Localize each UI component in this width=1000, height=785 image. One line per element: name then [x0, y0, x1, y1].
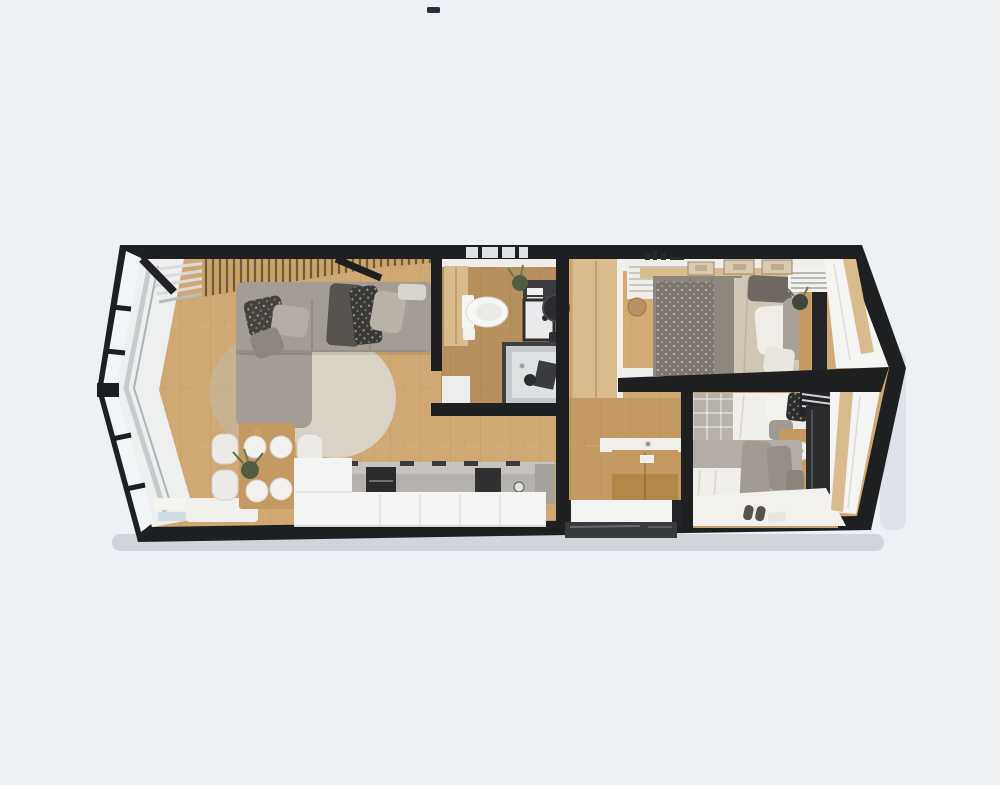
floorplan-canvas	[0, 0, 1000, 785]
bath-plant	[512, 275, 528, 291]
wall-bath-left	[431, 259, 442, 371]
wall-bedroom2-left	[681, 392, 693, 528]
double-bed	[640, 268, 811, 376]
hall-backwall	[600, 438, 686, 452]
wall-bath-bottom	[431, 403, 569, 416]
hall-wardrobe-column	[573, 259, 623, 400]
entry-door	[565, 522, 677, 538]
pouf	[628, 298, 646, 316]
bedroom-1	[620, 251, 889, 378]
towel	[527, 288, 543, 295]
bathroom-door-zone	[442, 376, 470, 403]
floorplan-render	[0, 0, 1000, 785]
tv-panel	[812, 290, 827, 376]
decor-item	[640, 455, 654, 463]
white-duvet	[733, 393, 767, 441]
light-switch	[646, 442, 651, 447]
sideboard	[612, 450, 678, 504]
cooktop	[475, 468, 501, 495]
floor-paper	[768, 511, 787, 523]
hallway	[562, 398, 686, 527]
books	[154, 498, 186, 510]
book-blue	[158, 512, 186, 521]
window-corner-post	[97, 383, 119, 397]
pillow-dark	[747, 275, 792, 303]
toilet-brush	[463, 328, 475, 340]
watermark-mark	[427, 7, 440, 13]
kitchen	[294, 458, 555, 529]
shower	[504, 344, 564, 406]
shower-head	[524, 374, 536, 386]
wall-frames	[688, 260, 792, 275]
bedroom-2	[688, 390, 880, 528]
armrest-towel	[398, 284, 427, 301]
shower-drain	[520, 364, 525, 369]
wall-bath-right	[556, 259, 569, 525]
bathroom	[441, 259, 569, 406]
sink-knob	[514, 482, 524, 492]
pillow-gray	[740, 440, 773, 499]
top-wall-accents	[466, 247, 528, 258]
